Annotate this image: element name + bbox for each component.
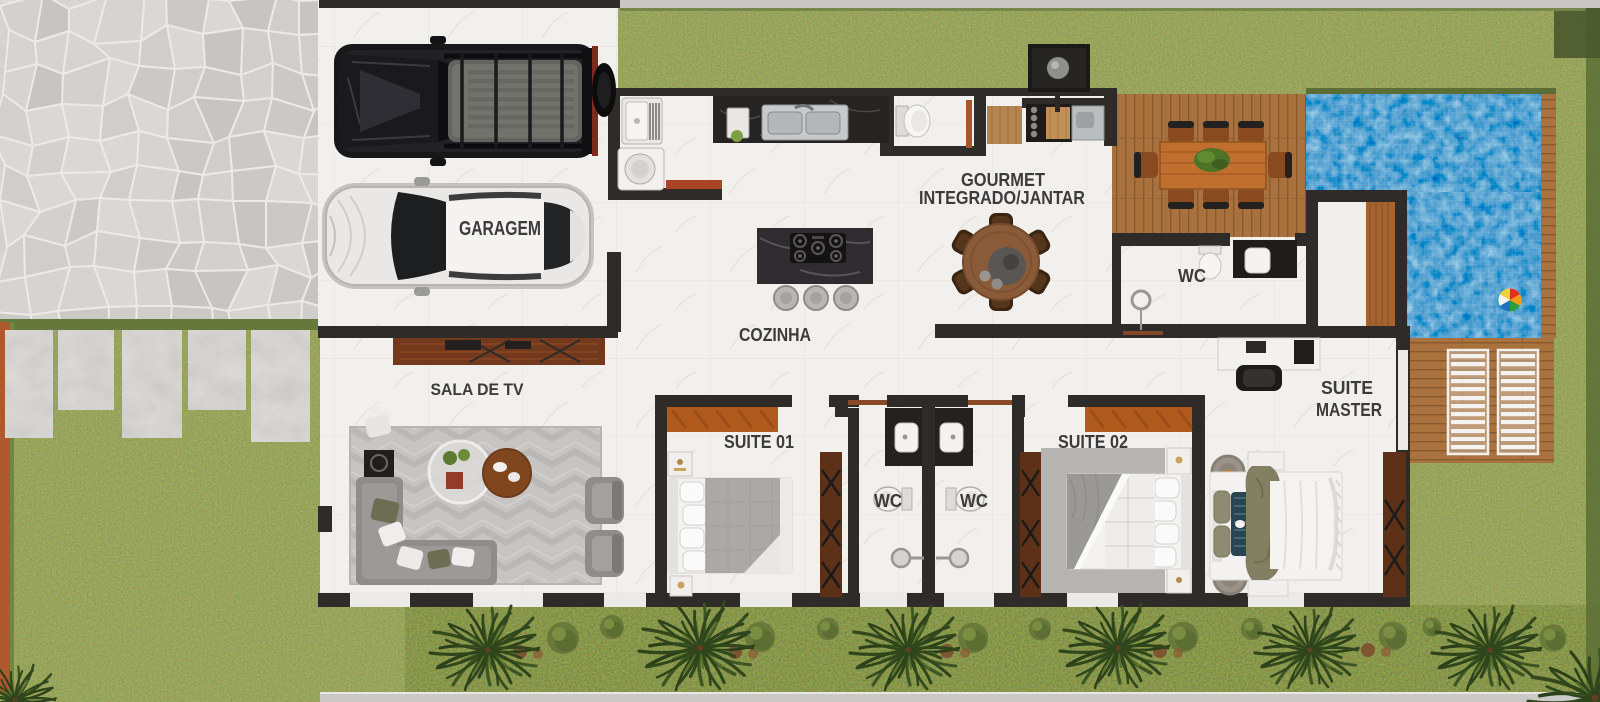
svg-text:GARAGEM: GARAGEM [459, 218, 541, 240]
svg-text:SUITE: SUITE [1321, 378, 1373, 398]
svg-text:SALA DE TV: SALA DE TV [431, 380, 525, 399]
svg-text:MASTER: MASTER [1316, 400, 1382, 420]
svg-text:WC: WC [874, 491, 902, 511]
svg-text:SUITE 02: SUITE 02 [1058, 432, 1128, 452]
svg-text:SUITE 01: SUITE 01 [724, 432, 794, 452]
svg-text:INTEGRADO/JANTAR: INTEGRADO/JANTAR [919, 188, 1085, 208]
svg-text:GOURMET: GOURMET [961, 170, 1045, 190]
svg-text:WC: WC [1178, 266, 1206, 286]
svg-text:COZINHA: COZINHA [739, 325, 811, 345]
svg-text:WC: WC [960, 491, 988, 511]
